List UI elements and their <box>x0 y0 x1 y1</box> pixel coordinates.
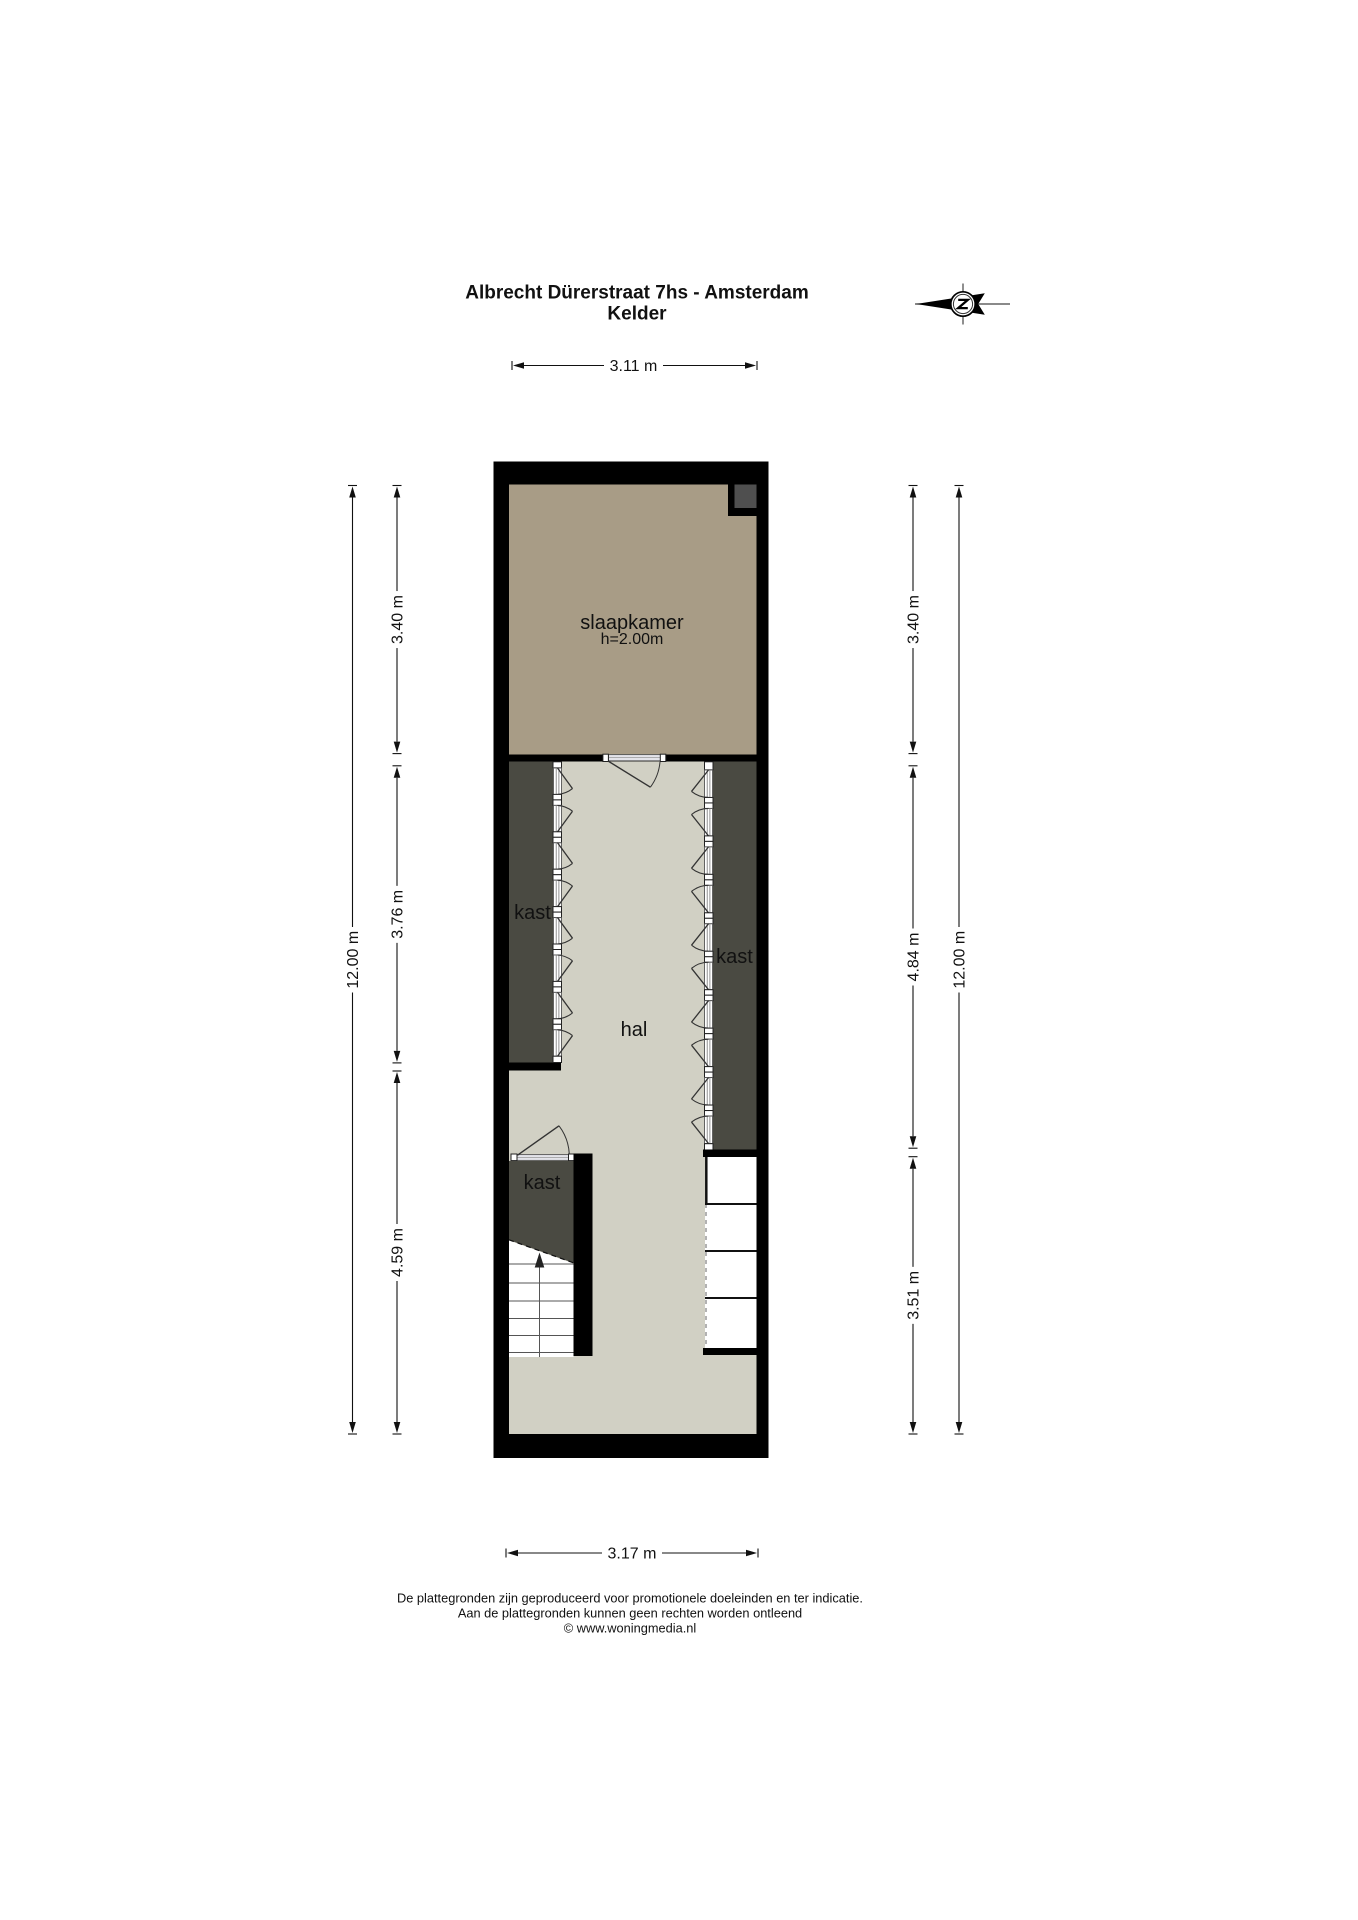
svg-text:4.59 m: 4.59 m <box>390 1228 407 1277</box>
svg-text:3.17 m: 3.17 m <box>608 1546 657 1563</box>
svg-text:12.00 m: 12.00 m <box>345 931 362 989</box>
svg-text:3.40 m: 3.40 m <box>906 595 923 644</box>
svg-text:© www.woningmedia.nl: © www.woningmedia.nl <box>564 1621 696 1636</box>
svg-text:3.51 m: 3.51 m <box>906 1271 923 1320</box>
svg-text:3.76 m: 3.76 m <box>390 890 407 939</box>
svg-text:Albrecht Dürerstraat 7hs - Ams: Albrecht Dürerstraat 7hs - Amsterdam <box>465 283 809 304</box>
svg-text:3.40 m: 3.40 m <box>390 595 407 644</box>
svg-text:kast: kast <box>716 946 753 968</box>
svg-text:kast: kast <box>524 1172 561 1194</box>
svg-text:Aan de plattegronden kunnen ge: Aan de plattegronden kunnen geen rechten… <box>458 1606 802 1621</box>
svg-text:4.84 m: 4.84 m <box>906 933 923 982</box>
svg-text:3.11 m: 3.11 m <box>610 358 658 375</box>
svg-text:12.00 m: 12.00 m <box>952 931 969 989</box>
svg-text:kast: kast <box>514 902 551 924</box>
svg-text:Kelder: Kelder <box>607 304 667 325</box>
svg-text:De plattegronden zijn geproduc: De plattegronden zijn geproduceerd voor … <box>397 1591 863 1606</box>
svg-text:h=2.00m: h=2.00m <box>601 631 664 648</box>
svg-text:hal: hal <box>621 1019 648 1041</box>
